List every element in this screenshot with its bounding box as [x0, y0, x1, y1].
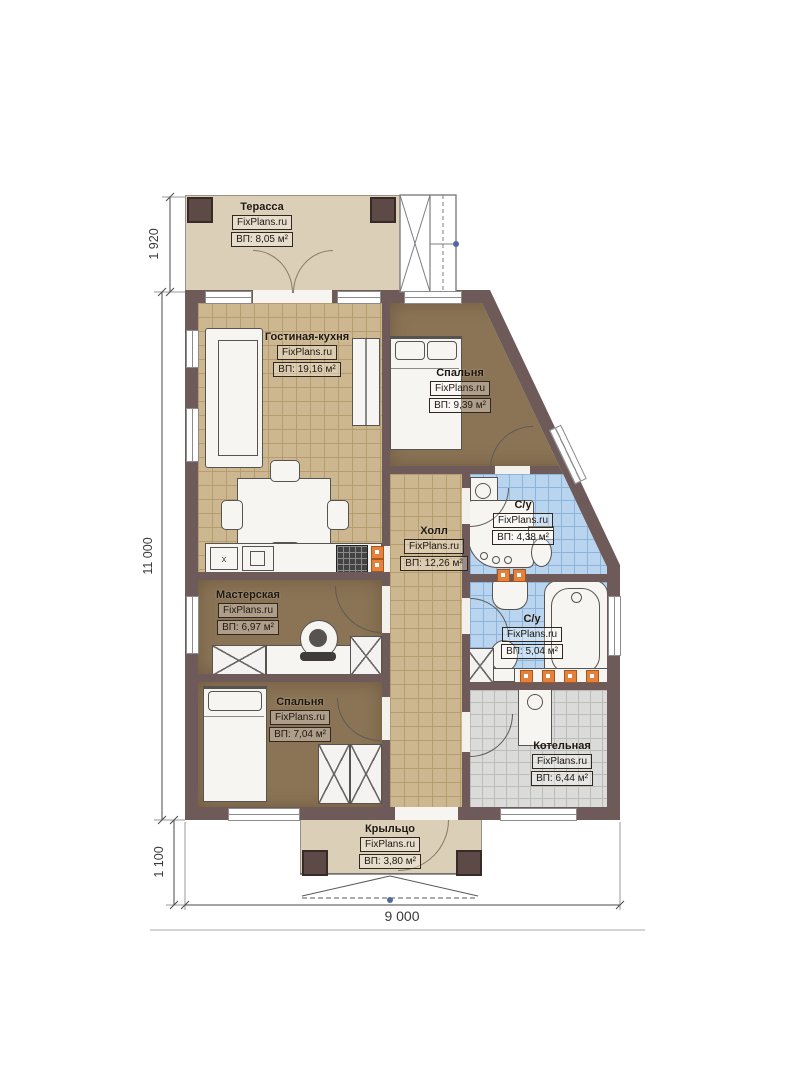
chair [270, 460, 300, 482]
fixplans-badge: FixPlans.ru [277, 345, 337, 360]
room-name: Терасса [240, 201, 284, 213]
fixplans-badge: FixPlans.ru [502, 627, 562, 642]
porch-steps [300, 874, 480, 898]
window [337, 291, 381, 304]
porch-post [302, 850, 328, 876]
door-gap [462, 712, 470, 752]
fixplans-badge: FixPlans.ru [360, 837, 420, 852]
closet [350, 636, 382, 676]
area-badge: ВП: 6,44 м² [531, 771, 593, 786]
closet [350, 744, 382, 804]
door-gap [382, 697, 390, 740]
floor-hall [390, 474, 462, 807]
room-label-terrace: Терасса FixPlans.ru ВП: 8,05 м² [212, 201, 312, 247]
porch-post [456, 850, 482, 876]
wall-hall-boiler [462, 752, 470, 807]
exterior-stairs [400, 195, 456, 292]
outlet-marker [586, 670, 599, 683]
fixplans-badge: FixPlans.ru [493, 513, 553, 528]
dim-house-width: 9 000 [372, 908, 432, 924]
room-name: Мастерская [216, 589, 280, 601]
chair [327, 500, 349, 530]
room-label-living: Гостиная-кухня FixPlans.ru ВП: 19,16 м² [250, 331, 364, 377]
room-label-boiler: Котельная FixPlans.ru ВП: 6,44 м² [512, 740, 612, 786]
dining-table [237, 478, 331, 546]
boiler-dial [527, 694, 543, 710]
chair [221, 500, 243, 530]
fixplans-badge: FixPlans.ru [270, 710, 330, 725]
room-label-bedroom2: Спальня FixPlans.ru ВП: 7,04 м² [250, 696, 350, 742]
room-label-bath1: С/у FixPlans.ru ВП: 4,38 м² [473, 499, 573, 545]
pillow [395, 341, 425, 360]
terrace-post [370, 197, 396, 223]
room-label-porch: Крыльцо FixPlans.ru ВП: 3,80 м² [338, 823, 442, 869]
kitchen-appliance-door [250, 551, 265, 566]
area-badge: ВП: 4,38 м² [492, 530, 554, 545]
window [186, 408, 199, 462]
sink-mark: x [222, 554, 227, 564]
window [228, 808, 300, 821]
fixplans-badge: FixPlans.ru [532, 754, 592, 769]
wall-living-hall [382, 303, 390, 546]
area-badge: ВП: 3,80 м² [359, 854, 421, 869]
fixplans-badge: FixPlans.ru [404, 539, 464, 554]
room-name: Котельная [533, 740, 591, 752]
room-label-bedroom1: Спальня FixPlans.ru ВП: 9,39 м² [410, 367, 510, 413]
fixplans-badge: FixPlans.ru [232, 215, 292, 230]
window [608, 596, 621, 656]
wall-hall-bedroom2 [382, 740, 390, 807]
wardrobe [212, 645, 266, 676]
outlet-marker [497, 569, 510, 582]
wall-bath2-boiler [470, 682, 607, 690]
closet [318, 744, 350, 804]
area-badge: ВП: 9,39 м² [429, 398, 491, 413]
wall-hall-bath2 [462, 634, 470, 712]
window [500, 808, 577, 821]
bathtub-drain [571, 592, 582, 603]
room-name: С/у [514, 499, 531, 511]
room-label-workshop: Мастерская FixPlans.ru ВП: 6,97 м² [198, 589, 298, 635]
door-gap [462, 488, 470, 524]
outlet-marker [513, 569, 526, 582]
wall-hall-bath1 [462, 474, 470, 488]
area-badge: ВП: 6,97 м² [217, 620, 279, 635]
door-gap [382, 586, 390, 633]
room-name: С/у [523, 613, 540, 625]
outlet-marker [371, 559, 384, 572]
area-badge: ВП: 8,05 м² [231, 232, 293, 247]
wall-workshop-bedroom2 [198, 674, 382, 682]
terrace-post [187, 197, 213, 223]
dim-porch-depth: 1 100 [152, 841, 166, 883]
area-badge: ВП: 19,16 м² [273, 362, 340, 377]
stairs-node-dot [453, 241, 459, 247]
wall-bedroom1-south [390, 466, 495, 474]
outlet-marker [542, 670, 555, 683]
kitchen-sink: x [210, 547, 238, 570]
door-gap [462, 598, 470, 634]
outlet-marker [564, 670, 577, 683]
porch-node-dot [387, 897, 393, 903]
room-name: Спальня [436, 367, 484, 379]
entrance-door-gap [395, 807, 458, 820]
fixplans-badge: FixPlans.ru [218, 603, 278, 618]
area-badge: ВП: 5,04 м² [501, 644, 563, 659]
room-name: Гостиная-кухня [265, 331, 349, 343]
window [205, 291, 252, 304]
outlet-marker [520, 670, 533, 683]
fixplans-badge: FixPlans.ru [430, 381, 490, 396]
window [404, 291, 462, 304]
room-label-bath2: С/у FixPlans.ru ВП: 5,04 м² [486, 613, 578, 659]
washbasin [492, 580, 528, 610]
floor-plan-canvas: x [0, 0, 792, 1080]
office-chair-seat [309, 629, 327, 647]
wall-bath1-bath2 [470, 574, 607, 582]
shower-jet [504, 556, 512, 564]
pillow [427, 341, 457, 360]
wall-hall-workshop [382, 633, 390, 697]
shower-jet [492, 556, 500, 564]
room-name: Холл [420, 525, 448, 537]
room-label-hall: Холл FixPlans.ru ВП: 12,26 м² [386, 525, 482, 571]
wall-hall-workshop [382, 572, 390, 586]
wall-living-workshop [198, 572, 382, 580]
dim-house-length: 11 000 [141, 529, 155, 583]
dim-terrace-depth: 1 920 [147, 223, 161, 265]
window [186, 330, 199, 368]
area-badge: ВП: 7,04 м² [269, 727, 331, 742]
outlet-marker [371, 546, 384, 559]
area-badge: ВП: 12,26 м² [400, 556, 467, 571]
stove [336, 545, 368, 573]
room-name: Крыльцо [365, 823, 415, 835]
office-chair-back [300, 652, 336, 661]
room-name: Спальня [276, 696, 324, 708]
